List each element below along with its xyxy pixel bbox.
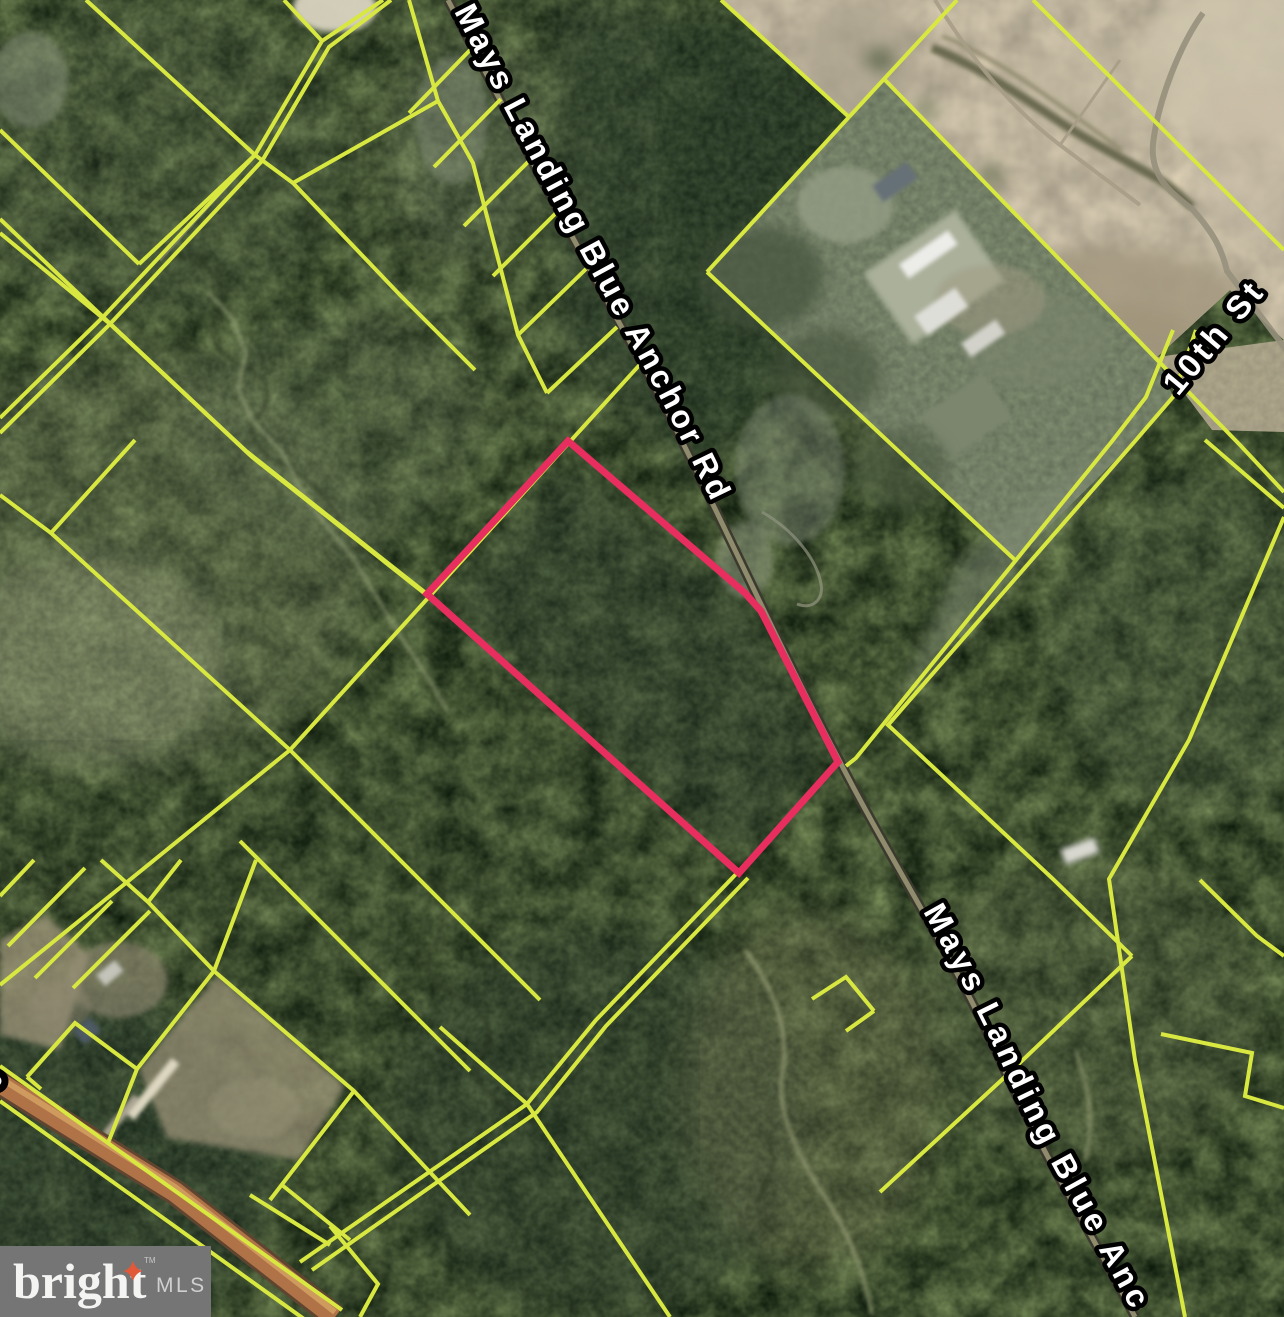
svg-text:MLS: MLS: [156, 1274, 207, 1297]
svg-text:TM: TM: [144, 1256, 156, 1265]
svg-text:bright: bright: [13, 1253, 147, 1309]
